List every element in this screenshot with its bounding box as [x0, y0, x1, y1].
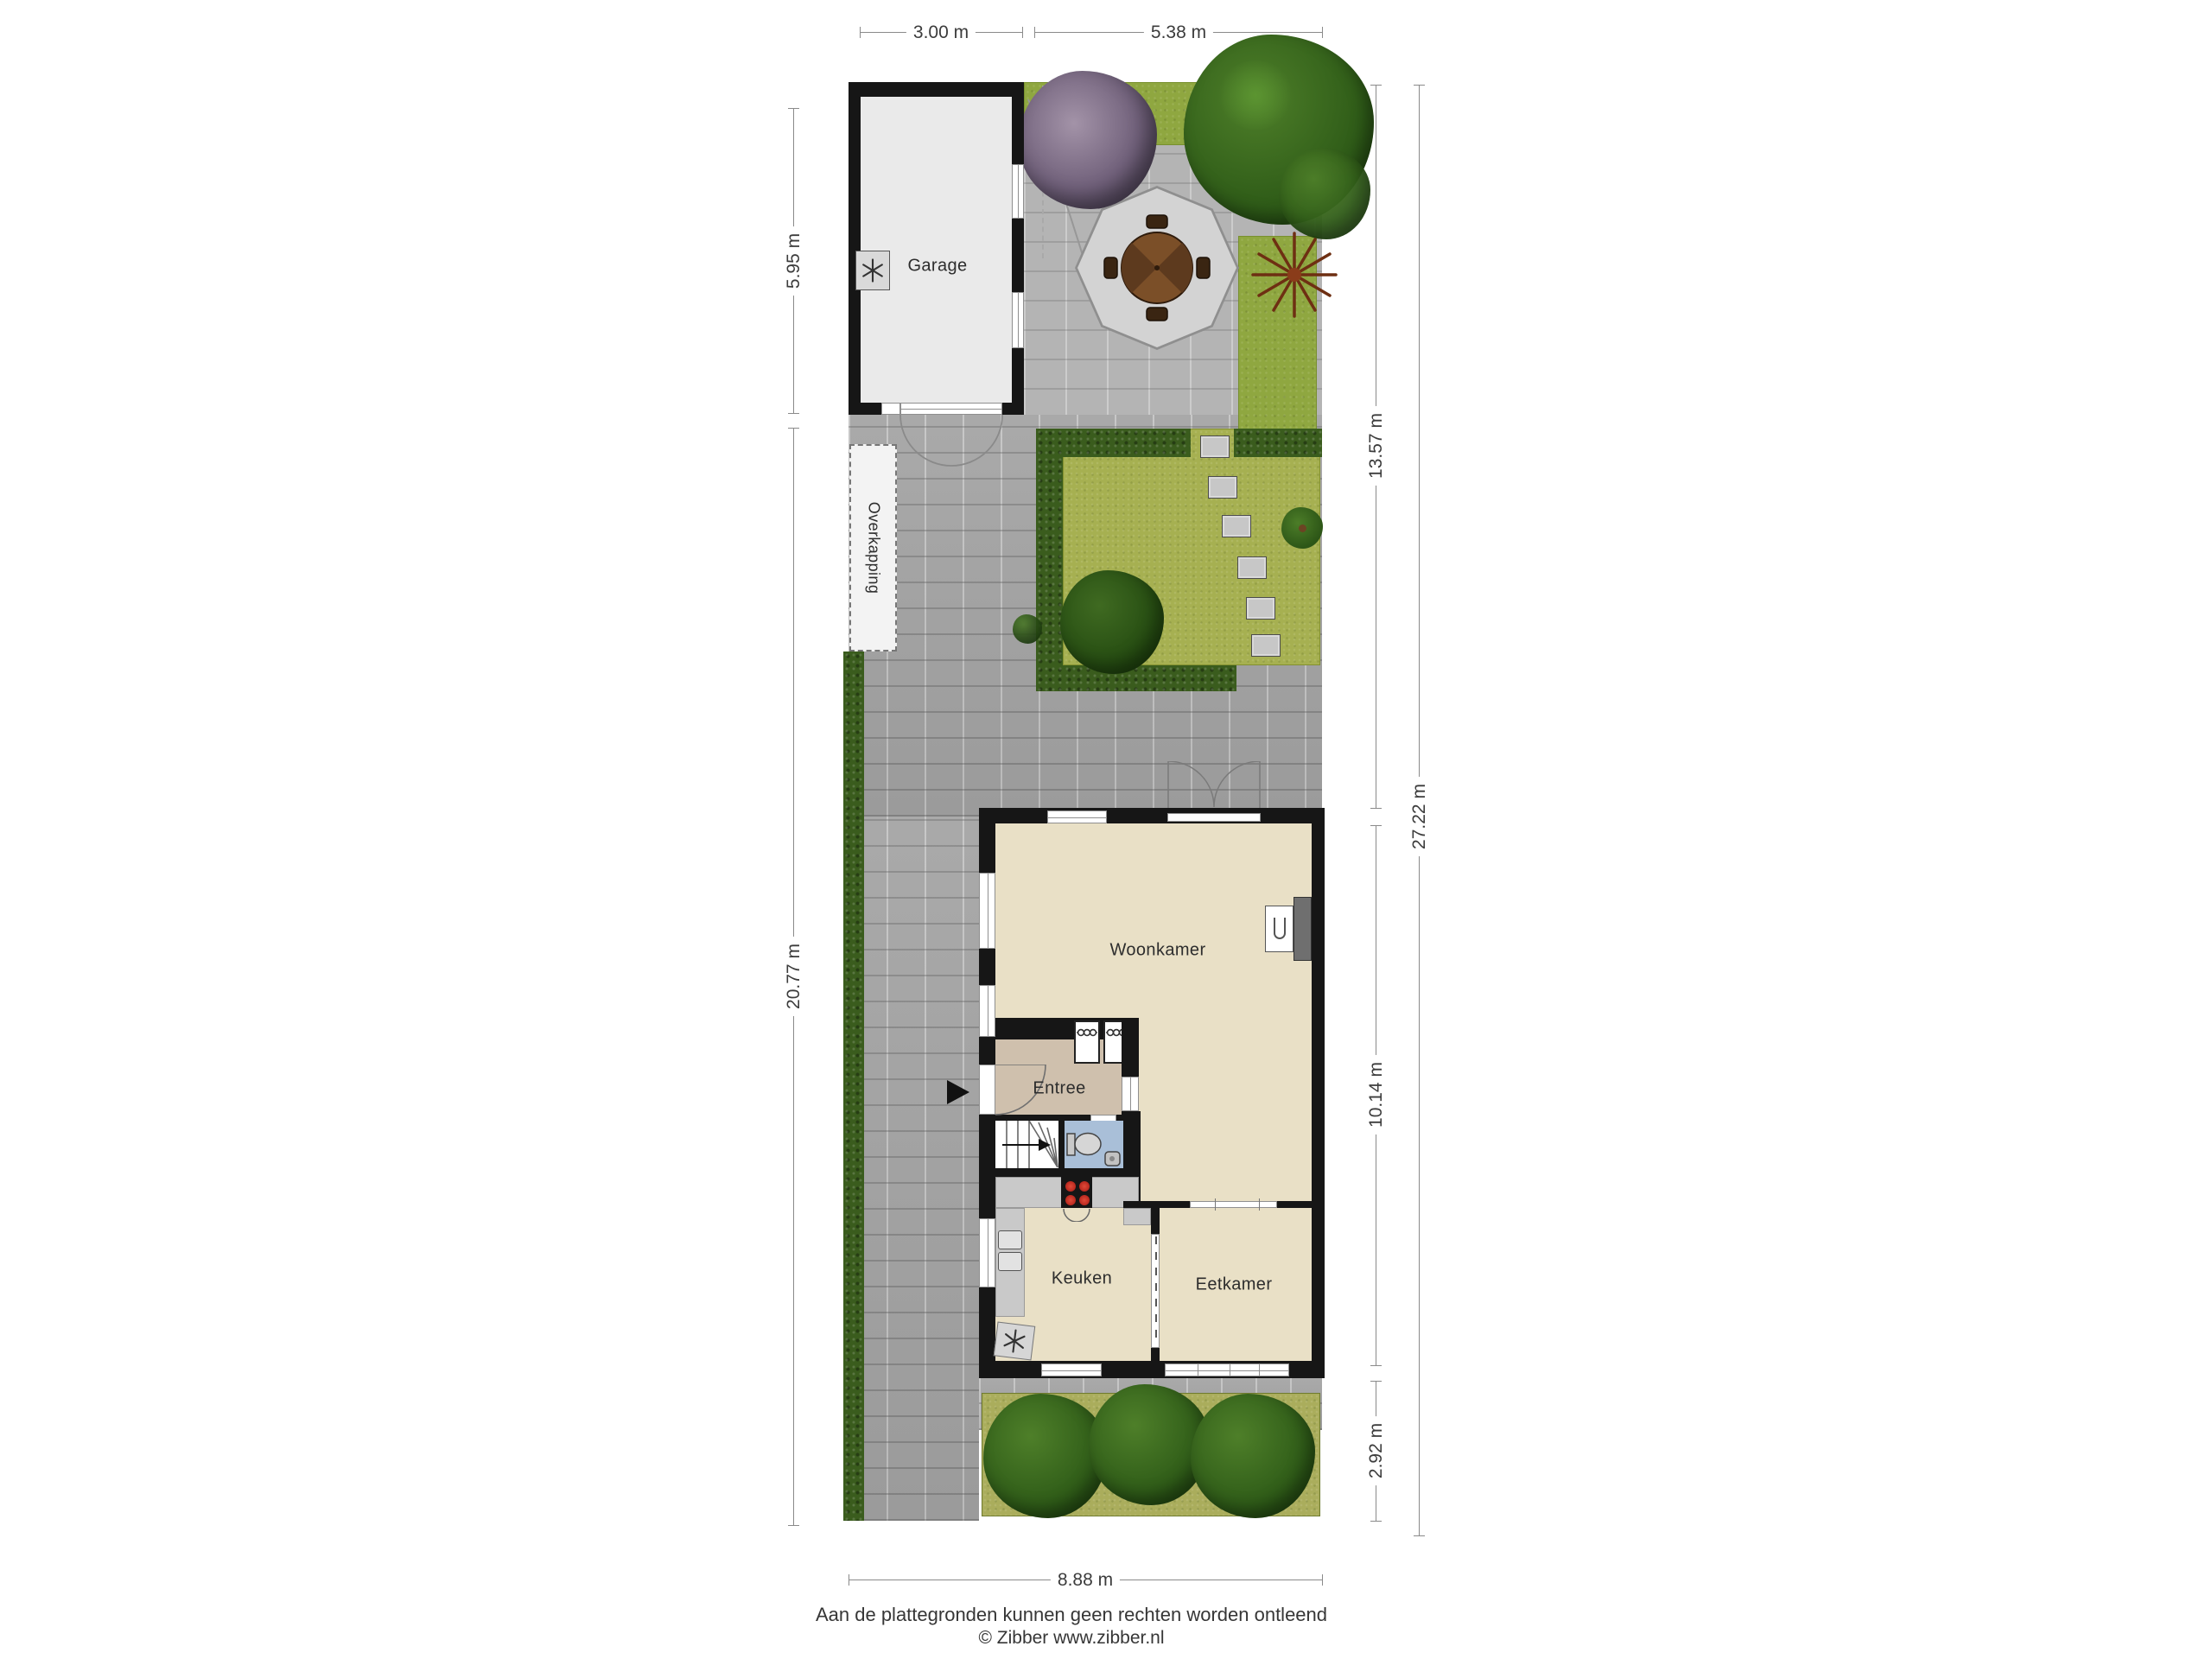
- keuken-eetkamer-wall-bottom: [1151, 1348, 1160, 1361]
- extractor-arc: [1061, 1208, 1092, 1222]
- keuken-label: Keuken: [1052, 1269, 1112, 1289]
- dim-right-house: 10.14 m: [1366, 1055, 1387, 1135]
- stepping-stone: [1251, 634, 1281, 657]
- hob-burner: [1065, 1181, 1076, 1192]
- keuken-window-left: [979, 1218, 995, 1287]
- garage-window-right-1: [1012, 164, 1024, 219]
- fireplace-back-panel: [1294, 897, 1312, 961]
- dim-bottom-plot: 8.88 m: [1051, 1570, 1120, 1591]
- fern-plant-icon: [1247, 227, 1342, 322]
- dim-right-front-garden: 2.92 m: [1366, 1416, 1387, 1485]
- garage-label: Garage: [907, 257, 967, 276]
- dim-top-garage: 3.00 m: [906, 22, 976, 43]
- woonkamer-window-left-1: [979, 873, 995, 949]
- fireplace-icon: [1268, 914, 1291, 945]
- dim-left-garden: 20.77 m: [784, 937, 804, 1016]
- tree-purple: [1019, 71, 1157, 209]
- fan-icon: [860, 256, 886, 285]
- entree-label: Entree: [1033, 1079, 1085, 1099]
- garden-doors-swing: [1167, 761, 1261, 808]
- kitchen-sink: [998, 1230, 1022, 1249]
- toilet-wall-bottom: [995, 1168, 1141, 1177]
- kitchen-sink: [998, 1252, 1022, 1271]
- back-lawn-hedge-bottom: [1036, 665, 1236, 691]
- dim-right-total: 27.22 m: [1409, 777, 1430, 856]
- woonkamer-eetkamer-opening: [1190, 1201, 1277, 1208]
- garage-wall-top: [849, 82, 1024, 97]
- entrance-arrow-icon: [947, 1080, 969, 1104]
- copyright-text: © Zibber www.zibber.nl: [978, 1628, 1164, 1649]
- floorplan-canvas: Garage Overkapping: [0, 0, 2212, 1659]
- garage-wall-right-1: [1012, 97, 1024, 164]
- stepping-stone: [1200, 435, 1230, 458]
- woonkamer-window-left-2: [979, 985, 995, 1037]
- lawn-bush: [1060, 570, 1164, 674]
- hob-burner: [1065, 1195, 1076, 1205]
- stairs-treads: [995, 1121, 1058, 1168]
- coat-hanger-icon: [1076, 1024, 1098, 1041]
- hob-burner: [1079, 1195, 1090, 1205]
- dim-left-garage: 5.95 m: [784, 226, 804, 296]
- garage-door-swing: [880, 403, 1022, 470]
- garage-window-right-2: [1012, 292, 1024, 348]
- stepping-stone: [1208, 476, 1237, 499]
- front-bush: [1191, 1394, 1315, 1518]
- garden-doors-opening: [1167, 813, 1261, 822]
- keuken-window-bottom: [1041, 1363, 1102, 1376]
- back-lawn-hedge-top-right: [1234, 429, 1322, 457]
- garage-floor: [861, 97, 1012, 403]
- front-door: [979, 1065, 995, 1115]
- woonkamer-window-top: [1047, 810, 1107, 823]
- toilet-icon: [1065, 1121, 1123, 1168]
- keuken-eetkamer-slider: [1151, 1234, 1160, 1348]
- garage-wall-right-3: [1012, 348, 1024, 403]
- disclaimer-text: Aan de plattegronden kunnen geen rechten…: [816, 1604, 1327, 1626]
- dim-right-back-garden: 13.57 m: [1366, 406, 1387, 486]
- stepping-stone: [1246, 597, 1275, 620]
- hedge-left-boundary: [843, 652, 864, 1521]
- entree-woonkamer-opening: [1122, 1077, 1139, 1111]
- back-lawn-hedge-left: [1036, 429, 1063, 691]
- fan-icon: [999, 1326, 1029, 1356]
- garage-wall-right-2: [1012, 219, 1024, 292]
- hob-burner: [1079, 1181, 1090, 1192]
- eetkamer-window-bottom: [1165, 1363, 1289, 1376]
- closet-niche: [1074, 1020, 1100, 1064]
- garage-wall-bottom-1: [849, 403, 881, 415]
- path-sprig: [1013, 614, 1042, 644]
- keuken-eetkamer-wall-top: [1151, 1208, 1160, 1234]
- eetkamer-label: Eetkamer: [1196, 1275, 1273, 1295]
- stepping-stone: [1237, 556, 1267, 579]
- dim-top-garden: 5.38 m: [1144, 22, 1213, 43]
- tree-large-highlight: [1217, 60, 1294, 130]
- kitchen-counter-corner: [1123, 1208, 1151, 1225]
- garden-table-icon: [1101, 212, 1213, 324]
- side-path-paving: [849, 817, 979, 1521]
- woonkamer-label: Woonkamer: [1109, 941, 1205, 961]
- bush-top-right: [1279, 148, 1370, 239]
- stepping-stone: [1222, 515, 1251, 537]
- garage-wall-left: [849, 82, 861, 415]
- stairs-toilet-divider: [1058, 1125, 1065, 1168]
- lawn-small-tree-center: [1299, 524, 1306, 532]
- overkapping-label: Overkapping: [865, 502, 883, 594]
